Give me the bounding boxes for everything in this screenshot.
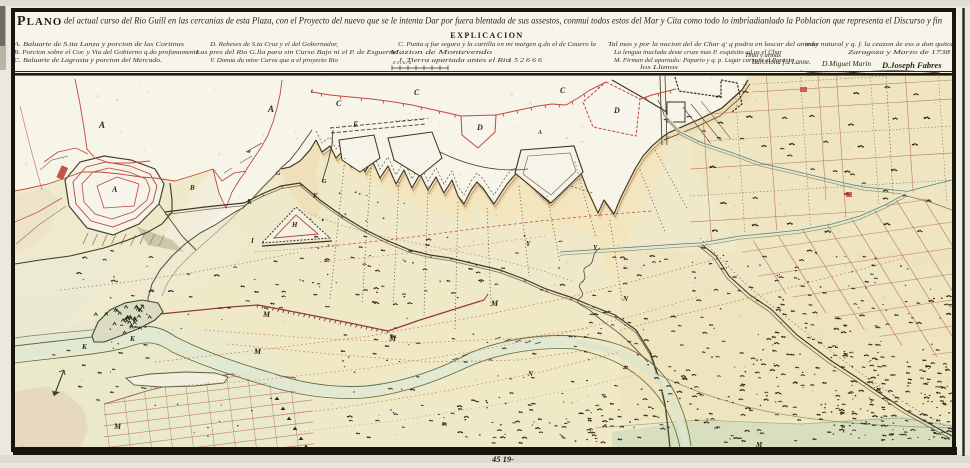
svg-text:A: A (537, 130, 542, 136)
svg-text:D. Rebeses de S.ta Cruz y el d: D. Rebeses de S.ta Cruz y el del Goberna… (209, 41, 339, 48)
svg-text:E: E (352, 120, 358, 129)
svg-text:muy natural y q. f. la ceazon: muy natural y q. f. la ceazon de ess a d… (806, 41, 955, 48)
svg-text:M: M (490, 299, 499, 308)
svg-text:Zaragoza y Marzo de 1738: Zaragoza y Marzo de 1738 (848, 49, 951, 56)
svg-text:PLANO: PLANO (17, 14, 62, 29)
svg-text:Las pres del Rio G.lla para si: Las pres del Rio G.lla para sin Curso Ba… (195, 49, 396, 56)
svg-text:M: M (113, 422, 122, 431)
svg-text:A: A (267, 104, 274, 114)
svg-text:Mazion de Montevendo: Mazion de Montevendo (388, 49, 492, 56)
svg-text:D.Joseph Fabres: D.Joseph Fabres (881, 60, 942, 70)
svg-text:B: B (189, 184, 195, 192)
svg-text:C: C (414, 88, 420, 97)
svg-text:D: D (476, 123, 483, 132)
svg-text:Y: Y (526, 240, 531, 248)
svg-text:E s c a l a: E s c a l a (392, 60, 412, 65)
svg-text:A: A (98, 120, 105, 130)
svg-text:1 5 2 6 6 6: 1 5 2 6 6 6 (508, 57, 543, 64)
svg-text:H: H (291, 221, 298, 229)
svg-text:Tal mas y por la nacion del de: Tal mas y por la nacion del de Char q' q… (608, 41, 818, 48)
svg-text:Tinto y armas: Tinto y armas (745, 52, 781, 59)
svg-text:EXPLICACION: EXPLICACION (450, 31, 523, 40)
svg-text:A: A (111, 185, 118, 194)
svg-text:del actual curso del Rio Guill: del actual curso del Rio Guill en las ce… (64, 16, 942, 26)
svg-text:V. Donau du mior Curva que a e: V. Donau du mior Curva que a el proyecto… (210, 57, 338, 64)
svg-text:C: C (560, 86, 566, 95)
svg-text:45 19-: 45 19- (491, 454, 514, 463)
svg-text:Barcelona f.d Lanne.: Barcelona f.d Lanne. (752, 58, 811, 66)
svg-text:N: N (622, 295, 629, 303)
svg-text:C: C (336, 99, 342, 108)
svg-text:D.Miguel Marin: D.Miguel Marin (821, 59, 871, 68)
svg-text:I: I (250, 237, 254, 245)
svg-text:G: G (322, 179, 327, 185)
svg-text:D: D (613, 106, 620, 115)
svg-text:Y: Y (593, 244, 598, 252)
svg-text:M: M (388, 334, 397, 343)
svg-text:N: N (527, 370, 534, 378)
svg-text:C. Baluarte de Lagrasta y porc: C. Baluarte de Lagrasta y porcion del Me… (14, 57, 162, 64)
svg-text:los Llanos: los Llanos (640, 64, 679, 71)
svg-text:A. Baluarte de S.tta Lanza y p: A. Baluarte de S.tta Lanza y porcion de … (13, 41, 185, 48)
svg-text:C. Punta q fue segura y la car: C. Punta q fue segura y la cartilla en m… (398, 41, 596, 48)
svg-text:J. Tierra apartada antes el Ri: J. Tierra apartada antes el Rio (398, 57, 510, 64)
svg-text:M: M (253, 347, 262, 356)
svg-text:B. Porcion sobre el Cor. y Via: B. Porcion sobre el Cor. y Via del Gobie… (14, 49, 199, 56)
svg-text:M: M (262, 310, 271, 319)
svg-text:G: G (276, 171, 281, 177)
